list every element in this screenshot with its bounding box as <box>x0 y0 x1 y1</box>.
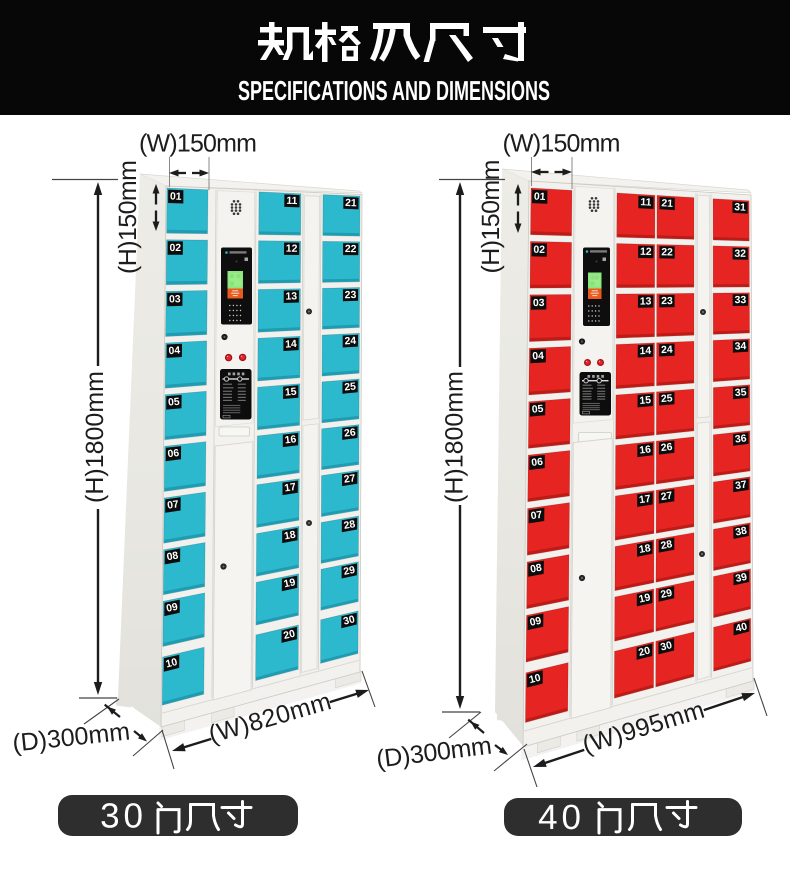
svg-text:25: 25 <box>344 382 357 394</box>
svg-text:07: 07 <box>167 499 180 512</box>
svg-text:(D)300mm: (D)300mm <box>375 732 494 774</box>
svg-text:08: 08 <box>529 563 543 576</box>
svg-text:26: 26 <box>344 427 357 439</box>
svg-text:24: 24 <box>661 345 673 357</box>
svg-text:26: 26 <box>660 442 673 454</box>
svg-text:09: 09 <box>165 602 179 615</box>
svg-text:01: 01 <box>534 191 546 203</box>
svg-text:23: 23 <box>345 290 357 301</box>
svg-text:22: 22 <box>345 244 357 255</box>
svg-text:05: 05 <box>168 397 181 409</box>
svg-text:25: 25 <box>661 393 674 405</box>
svg-text:38: 38 <box>735 526 749 539</box>
svg-text:28: 28 <box>343 519 357 532</box>
svg-text:02: 02 <box>533 245 545 256</box>
svg-text:27: 27 <box>660 490 673 503</box>
svg-text:(W)150mm: (W)150mm <box>139 130 257 158</box>
svg-text:27: 27 <box>343 473 356 486</box>
svg-text:30: 30 <box>100 797 147 836</box>
svg-text:21: 21 <box>661 198 673 210</box>
svg-text:24: 24 <box>344 336 356 348</box>
svg-text:(W)150mm: (W)150mm <box>503 130 621 158</box>
svg-text:37: 37 <box>735 479 748 492</box>
svg-text:06: 06 <box>167 448 180 460</box>
svg-text:18: 18 <box>283 530 297 543</box>
svg-text:35: 35 <box>735 387 748 399</box>
svg-text:(H)150mm: (H)150mm <box>477 160 505 274</box>
svg-text:15: 15 <box>639 395 652 407</box>
svg-text:40: 40 <box>538 798 585 837</box>
svg-text:12: 12 <box>286 244 298 255</box>
svg-text:02: 02 <box>169 243 181 254</box>
svg-text:32: 32 <box>734 249 746 260</box>
svg-text:03: 03 <box>533 298 545 309</box>
svg-text:12: 12 <box>640 247 652 258</box>
svg-text:29: 29 <box>343 565 357 578</box>
svg-text:(D)300mm: (D)300mm <box>11 717 131 757</box>
svg-text:16: 16 <box>639 444 652 456</box>
svg-text:14: 14 <box>285 339 297 351</box>
svg-text:08: 08 <box>166 550 180 563</box>
svg-text:SPECIFICATIONS AND DIMENSIONS: SPECIFICATIONS AND DIMENSIONS <box>238 75 550 106</box>
svg-text:(H)1800mm: (H)1800mm <box>441 371 469 503</box>
svg-text:03: 03 <box>169 294 181 305</box>
svg-text:36: 36 <box>734 433 747 445</box>
svg-text:17: 17 <box>284 482 297 495</box>
svg-text:18: 18 <box>638 543 652 556</box>
svg-text:21: 21 <box>345 198 357 209</box>
svg-text:13: 13 <box>640 296 652 307</box>
svg-text:04: 04 <box>532 351 544 363</box>
svg-text:28: 28 <box>660 539 674 552</box>
svg-text:17: 17 <box>638 494 651 507</box>
svg-text:13: 13 <box>285 291 297 302</box>
svg-text:01: 01 <box>170 191 182 202</box>
svg-text:04: 04 <box>168 345 180 357</box>
svg-text:31: 31 <box>734 202 746 214</box>
svg-text:19: 19 <box>283 577 297 590</box>
svg-text:06: 06 <box>531 457 544 469</box>
svg-text:34: 34 <box>734 341 746 353</box>
svg-text:07: 07 <box>530 510 543 523</box>
svg-text:(H)1800mm: (H)1800mm <box>81 371 109 503</box>
svg-text:05: 05 <box>531 404 544 416</box>
svg-text:11: 11 <box>640 197 652 209</box>
svg-text:23: 23 <box>661 296 673 307</box>
svg-text:15: 15 <box>285 387 298 399</box>
svg-text:14: 14 <box>639 346 651 358</box>
svg-text:11: 11 <box>286 196 298 207</box>
svg-text:33: 33 <box>735 295 747 306</box>
svg-text:22: 22 <box>661 247 673 258</box>
svg-text:16: 16 <box>284 434 297 446</box>
svg-text:(H)150mm: (H)150mm <box>114 160 142 274</box>
